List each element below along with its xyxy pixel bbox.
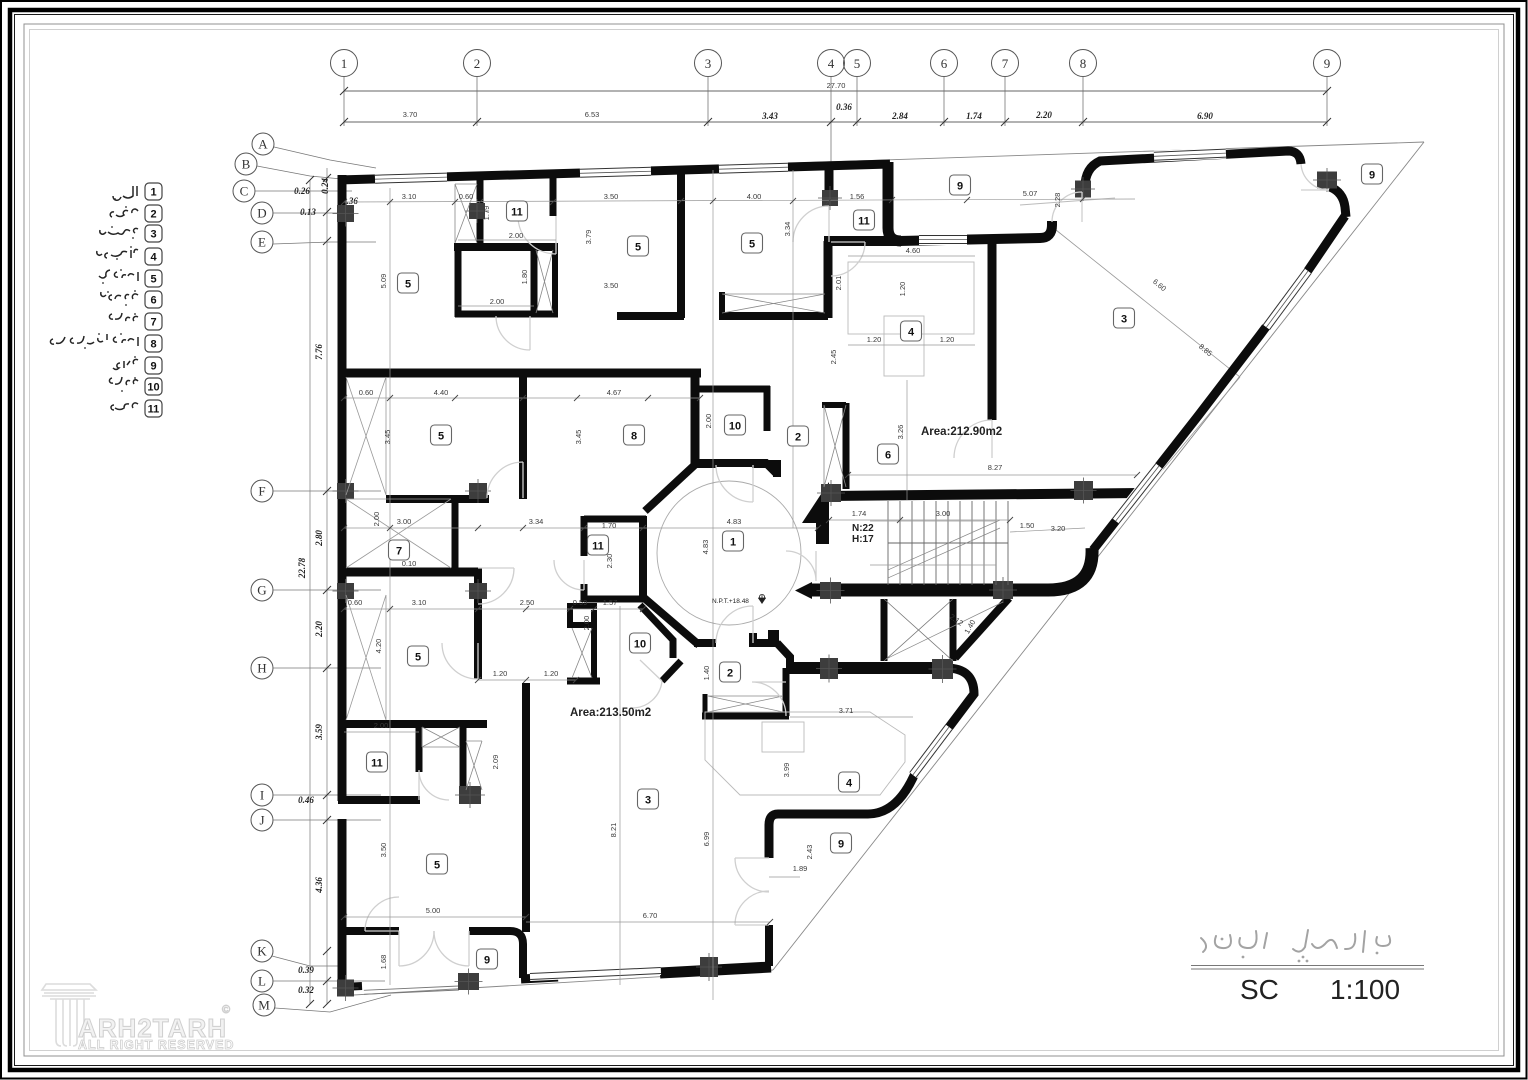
svg-text:3.10: 3.10: [402, 192, 417, 201]
svg-text:1.79: 1.79: [482, 206, 491, 221]
svg-text:3.10: 3.10: [412, 598, 427, 607]
svg-text:3: 3: [1121, 314, 1127, 326]
svg-text:27.70: 27.70: [827, 81, 846, 90]
svg-text:8: 8: [150, 339, 156, 351]
svg-text:Area:212.90m2: Area:212.90m2: [921, 426, 1002, 438]
svg-text:2.09: 2.09: [491, 755, 500, 770]
svg-text:6.53: 6.53: [585, 110, 600, 119]
svg-text:1.56: 1.56: [850, 192, 865, 201]
svg-text:2.20: 2.20: [314, 621, 324, 638]
svg-text:3.50: 3.50: [604, 281, 619, 290]
svg-text:1: 1: [730, 537, 736, 549]
svg-text:7: 7: [396, 546, 402, 558]
svg-text:4: 4: [150, 252, 157, 264]
svg-text:0.26: 0.26: [294, 186, 310, 196]
svg-text:2.00: 2.00: [372, 512, 381, 527]
svg-text:2.43: 2.43: [805, 845, 814, 860]
svg-text:8: 8: [1080, 56, 1087, 71]
svg-text:2.00: 2.00: [374, 721, 389, 730]
svg-text:M: M: [258, 998, 270, 1013]
svg-text:9: 9: [484, 955, 490, 967]
svg-text:2.00: 2.00: [704, 414, 713, 429]
svg-text:1:100: 1:100: [1330, 974, 1400, 1005]
svg-text:6.70: 6.70: [643, 911, 658, 920]
svg-text:3.43: 3.43: [761, 111, 778, 121]
svg-text:5: 5: [150, 274, 156, 286]
svg-text:2: 2: [150, 209, 156, 221]
svg-text:2.45: 2.45: [829, 350, 838, 365]
svg-text:1.20: 1.20: [493, 669, 508, 678]
svg-text:6.90: 6.90: [1197, 111, 1213, 121]
svg-text:H:17: H:17: [852, 534, 874, 545]
svg-text:2: 2: [727, 668, 733, 680]
svg-text:3.79: 3.79: [584, 230, 593, 245]
svg-text:4: 4: [846, 778, 853, 790]
svg-text:E: E: [258, 235, 266, 250]
svg-text:3: 3: [150, 229, 156, 241]
svg-text:6: 6: [150, 295, 156, 307]
svg-text:22.78: 22.78: [297, 557, 307, 579]
svg-text:1.40: 1.40: [702, 666, 711, 681]
svg-text:8.27: 8.27: [988, 463, 1003, 472]
svg-text:0.32: 0.32: [298, 985, 314, 995]
svg-text:3.99: 3.99: [782, 763, 791, 778]
svg-text:8: 8: [631, 431, 637, 443]
svg-text:3.71: 3.71: [839, 706, 854, 715]
svg-text:4.60: 4.60: [906, 246, 921, 255]
svg-text:10: 10: [729, 421, 741, 433]
svg-text:1.68: 1.68: [379, 955, 388, 970]
svg-text:B: B: [242, 157, 251, 172]
svg-text:11: 11: [371, 758, 383, 770]
svg-text:10: 10: [147, 382, 159, 394]
svg-text:6: 6: [941, 56, 948, 71]
svg-text:I: I: [260, 788, 264, 803]
svg-text:3.26: 3.26: [896, 425, 905, 440]
svg-text:3.70: 3.70: [403, 110, 418, 119]
svg-text:3.00: 3.00: [397, 517, 412, 526]
svg-text:5.00: 5.00: [426, 906, 441, 915]
svg-text:N.P.T.+18.48: N.P.T.+18.48: [712, 598, 749, 605]
svg-text:5: 5: [434, 860, 440, 872]
svg-text:0.46: 0.46: [298, 795, 314, 805]
svg-text:7.76: 7.76: [314, 344, 324, 360]
svg-text:2.20: 2.20: [1035, 110, 1052, 120]
svg-text:2.50: 2.50: [520, 598, 535, 607]
svg-text:3.34: 3.34: [529, 517, 544, 526]
svg-text:1.50: 1.50: [1020, 521, 1035, 530]
svg-text:N:22: N:22: [852, 523, 874, 534]
svg-text:1.20: 1.20: [544, 669, 559, 678]
svg-text:3.45: 3.45: [383, 430, 392, 445]
svg-text:3.59: 3.59: [314, 724, 324, 741]
svg-text:5.07: 5.07: [1023, 189, 1038, 198]
svg-text:3: 3: [705, 56, 712, 71]
svg-text:11: 11: [148, 404, 160, 416]
svg-text:3.20: 3.20: [1051, 524, 1066, 533]
svg-text:10: 10: [634, 639, 646, 651]
svg-text:4.36: 4.36: [314, 877, 324, 894]
svg-text:0.36: 0.36: [836, 102, 852, 112]
svg-text:2.28: 2.28: [1053, 193, 1062, 208]
svg-text:0.60: 0.60: [459, 192, 474, 201]
svg-text:4.20: 4.20: [374, 639, 383, 654]
svg-text:5: 5: [635, 242, 641, 254]
svg-text:1.74: 1.74: [966, 111, 982, 121]
svg-text:6.99: 6.99: [702, 832, 711, 847]
svg-text:2: 2: [795, 432, 801, 444]
svg-text:9: 9: [1369, 170, 1375, 182]
svg-text:4: 4: [828, 56, 835, 71]
svg-text:4.40: 4.40: [434, 388, 449, 397]
svg-text:9: 9: [838, 839, 844, 851]
svg-text:3.34: 3.34: [783, 222, 792, 237]
svg-text:4.67: 4.67: [607, 388, 622, 397]
svg-text:9: 9: [957, 181, 963, 193]
svg-text:1: 1: [341, 56, 348, 71]
svg-text:2.00: 2.00: [509, 231, 524, 240]
svg-text:0.60: 0.60: [359, 388, 374, 397]
svg-text:5.09: 5.09: [379, 274, 388, 289]
svg-text:0.39: 0.39: [298, 965, 314, 975]
svg-text:9: 9: [150, 361, 156, 373]
svg-text:K: K: [257, 944, 267, 959]
svg-text:2: 2: [474, 56, 481, 71]
svg-text:3.50: 3.50: [604, 192, 619, 201]
svg-text:1.20: 1.20: [898, 282, 907, 297]
svg-text:1.57: 1.57: [603, 598, 618, 607]
svg-text:8.21: 8.21: [609, 823, 618, 838]
svg-text:11: 11: [858, 216, 870, 228]
svg-text:0.60: 0.60: [348, 598, 363, 607]
svg-text:4.83: 4.83: [701, 540, 710, 555]
svg-text:G: G: [257, 583, 266, 598]
svg-text:1: 1: [150, 187, 156, 199]
svg-text:A: A: [258, 137, 268, 152]
svg-text:SC: SC: [1240, 974, 1279, 1005]
svg-text:Area:213.50m2: Area:213.50m2: [570, 707, 651, 719]
svg-text:3.50: 3.50: [379, 843, 388, 858]
svg-text:2.84: 2.84: [891, 111, 908, 121]
svg-text:5: 5: [405, 279, 411, 291]
svg-text:F: F: [258, 484, 265, 499]
svg-text:1.74: 1.74: [852, 509, 867, 518]
svg-text:3.45: 3.45: [574, 430, 583, 445]
svg-text:J: J: [259, 813, 264, 828]
svg-text:7: 7: [1002, 56, 1009, 71]
svg-text:4.83: 4.83: [727, 517, 742, 526]
svg-text:5: 5: [749, 239, 755, 251]
svg-text:1.89: 1.89: [793, 864, 808, 873]
svg-text:0.59: 0.59: [573, 598, 588, 607]
svg-text:L: L: [258, 974, 266, 989]
svg-text:5: 5: [438, 431, 444, 443]
svg-text:1.70: 1.70: [602, 521, 617, 530]
svg-text:1.20: 1.20: [867, 335, 882, 344]
svg-text:H: H: [257, 661, 266, 676]
svg-text:2.00: 2.00: [490, 297, 505, 306]
svg-text:4.00: 4.00: [747, 192, 762, 201]
svg-text:2.80: 2.80: [314, 530, 324, 547]
svg-text:ALL RIGHT RESERVED: ALL RIGHT RESERVED: [78, 1038, 234, 1052]
svg-text:C: C: [240, 184, 249, 199]
svg-text:9: 9: [1324, 56, 1331, 71]
svg-text:5: 5: [854, 56, 861, 71]
svg-text:1.20: 1.20: [940, 335, 955, 344]
svg-text:2.01: 2.01: [834, 276, 843, 291]
svg-text:3.00: 3.00: [936, 509, 951, 518]
svg-text:11: 11: [592, 541, 604, 553]
svg-text:0.24: 0.24: [320, 178, 330, 194]
svg-text:©: ©: [222, 1004, 230, 1016]
svg-text:6: 6: [885, 450, 891, 462]
svg-text:7: 7: [150, 317, 156, 329]
svg-text:1.80: 1.80: [520, 270, 529, 285]
svg-text:3: 3: [645, 795, 651, 807]
svg-text:0.13: 0.13: [300, 207, 316, 217]
svg-text:D: D: [257, 206, 266, 221]
svg-text:2.30: 2.30: [605, 554, 614, 569]
svg-text:2.00: 2.00: [582, 616, 591, 631]
svg-text:5: 5: [415, 652, 421, 664]
svg-text:11: 11: [511, 207, 523, 219]
svg-text:4: 4: [908, 327, 915, 339]
